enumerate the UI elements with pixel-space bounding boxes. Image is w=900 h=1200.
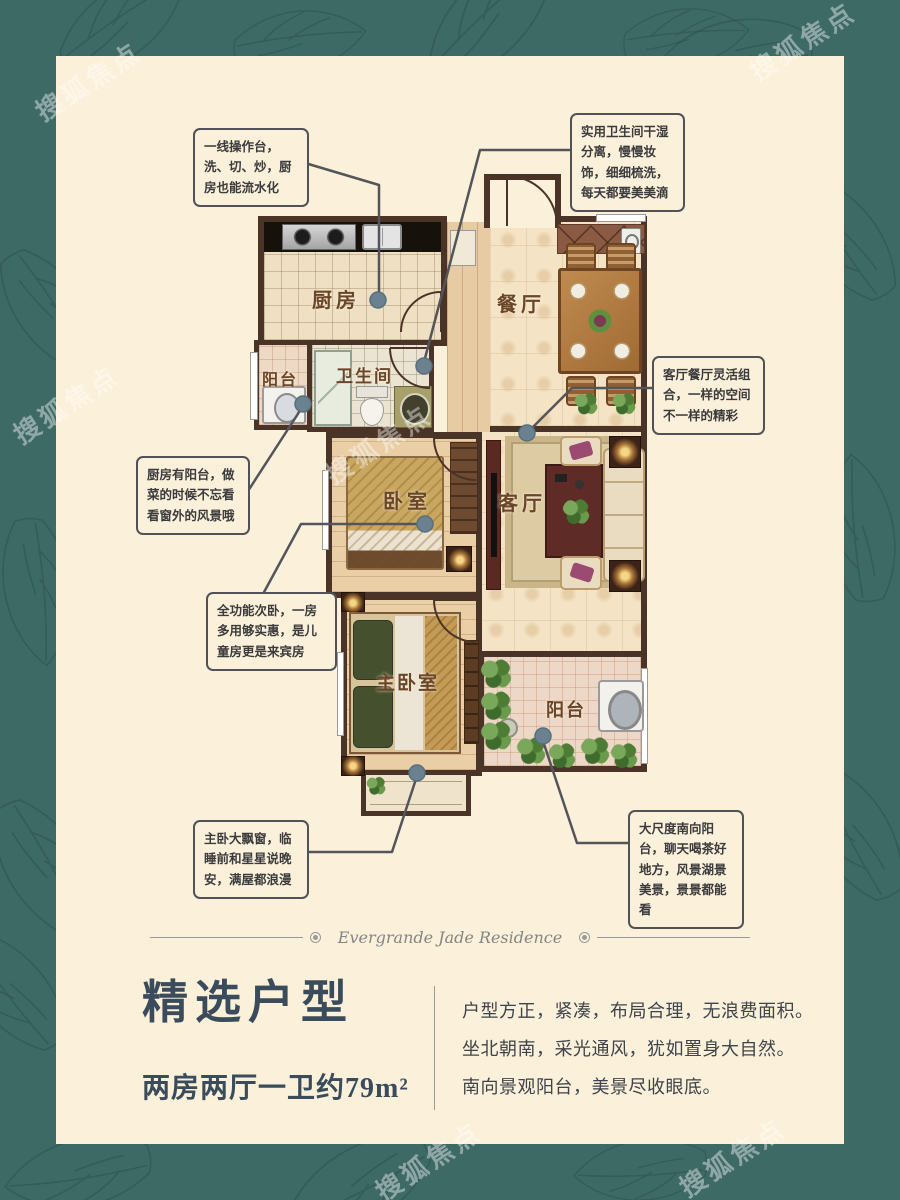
callout-kitchen-balcony: 厨房有阳台，做菜的时候不忘看看窗外的风景哦: [136, 456, 250, 535]
callout-connectors: [0, 0, 900, 1200]
poster-page: 厨房 阳台 卫生间 餐厅 卧室 客厅 主卧室 阳台 一线操作台，洗、切、炒，厨房…: [0, 0, 900, 1200]
callout-south-balcony: 大尺度南向阳台，聊天喝茶好地方，风景湖景美景，景景都能看: [628, 810, 744, 929]
callout-master-baywindow: 主卧大飘窗，临睡前和星星说晚安，满屋都浪漫: [193, 820, 309, 899]
callout-kitchen-worktop: 一线操作台，洗、切、炒，厨房也能流水化: [193, 128, 309, 207]
callout-bathroom: 实用卫生间干湿分离，慢慢妆饰，细细梳洗，每天都要美美滴: [570, 113, 685, 212]
callout-living-dining: 客厅餐厅灵活组合，一样的空间不一样的精彩: [652, 356, 765, 435]
callout-second-bedroom: 全功能次卧，一房多用够实惠，是儿童房更是来宾房: [206, 592, 337, 671]
